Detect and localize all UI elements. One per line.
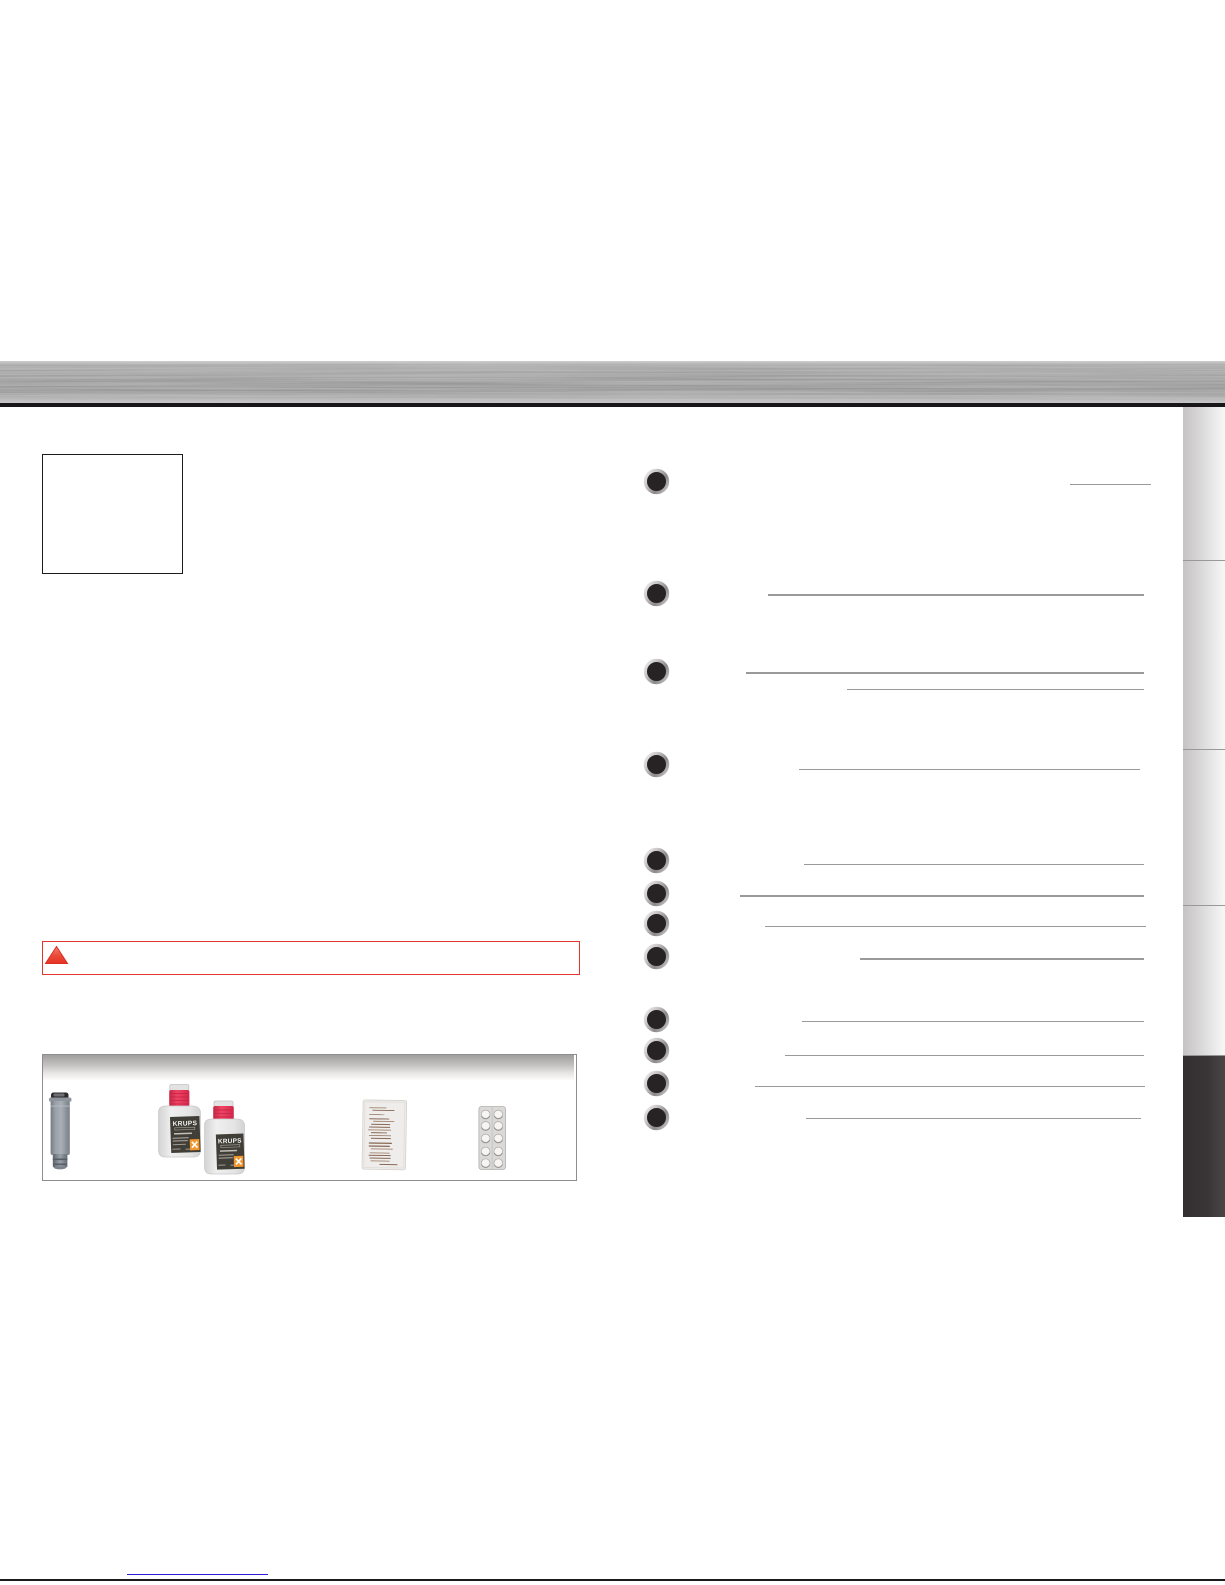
- svg-text:KRUPS: KRUPS: [218, 1138, 243, 1146]
- svg-text:KRUPS: KRUPS: [173, 1120, 198, 1128]
